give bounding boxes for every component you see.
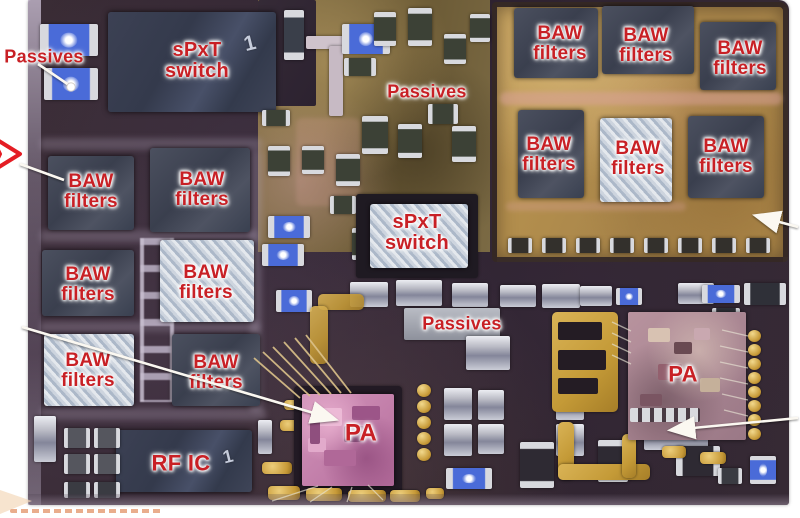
passive-chip: [94, 454, 120, 474]
die-detail: [694, 328, 710, 340]
passive-chip: [478, 390, 504, 420]
trace-cutout: [558, 378, 598, 394]
gold-pad: [748, 414, 761, 426]
passive-chip: [284, 10, 304, 60]
label-baw-filters-11: BAW filters: [611, 139, 665, 179]
label-baw-filters-9: BAW filters: [713, 39, 767, 79]
passive-chip: [94, 428, 120, 448]
label-spxt-switch-top-left: sPxT switch: [165, 40, 229, 82]
label-baw-filters-12: BAW filters: [699, 137, 753, 177]
gold-pad: [748, 428, 761, 440]
blue-capacitor: [750, 456, 776, 484]
label-spxt-switch-center: sPxT switch: [385, 212, 449, 254]
passive-chip: [444, 34, 466, 64]
passive-chip: [712, 238, 736, 253]
gold-pad: [417, 416, 431, 429]
passive-chip: [396, 280, 442, 306]
passive-chip: [330, 196, 356, 214]
passive-chip: [470, 14, 490, 42]
label-baw-filters-4: BAW filters: [179, 263, 233, 303]
passive-chip: [478, 424, 504, 454]
passive-chip: [576, 238, 600, 253]
passive-chip: [746, 238, 770, 253]
gold-pad: [748, 330, 761, 342]
gold-trace: [310, 306, 328, 364]
bond-pad-comb: [630, 408, 700, 422]
trace-cutout: [558, 322, 602, 340]
gold-pad: [748, 372, 761, 384]
passive-chip: [452, 126, 476, 162]
passive-chip: [34, 416, 56, 462]
gold-pad: [700, 452, 726, 464]
die-detail: [640, 394, 662, 406]
label-baw-filters-2: BAW filters: [175, 170, 229, 210]
photo-bottom-edge: [28, 494, 789, 505]
passive-chip: [580, 286, 612, 306]
blue-capacitor: [276, 290, 312, 312]
die-detail: [648, 328, 670, 342]
label-baw-filters-8: BAW filters: [619, 26, 673, 66]
gold-pad: [262, 462, 292, 474]
page-edge-artifact: [10, 509, 164, 513]
blue-capacitor: [616, 288, 642, 305]
label-baw-filters-1: BAW filters: [64, 172, 118, 212]
label-baw-filters-7: BAW filters: [533, 24, 587, 64]
blue-capacitor: [44, 68, 98, 100]
passive-chip: [336, 154, 360, 186]
passive-chip: [268, 146, 290, 176]
passive-chip: [520, 442, 554, 488]
trace-cutout: [558, 350, 606, 370]
gold-pad: [748, 400, 761, 412]
passive-chip: [344, 58, 376, 76]
passive-chip: [362, 116, 388, 154]
label-rf-ic: RF IC: [152, 451, 211, 474]
label-passives-top-middle: Passives: [387, 82, 466, 101]
passive-chip: [542, 284, 580, 308]
gold-trace: [622, 434, 636, 478]
die-detail: [352, 406, 380, 420]
passive-chip: [258, 420, 272, 454]
gold-pad: [748, 386, 761, 398]
die-detail: [310, 414, 320, 444]
gold-pad: [417, 384, 431, 397]
label-baw-filters-6: BAW filters: [189, 353, 243, 393]
label-baw-filters-10: BAW filters: [522, 135, 576, 175]
module-trace: [506, 202, 686, 211]
passive-chip: [444, 424, 472, 456]
passive-chip: [262, 110, 290, 126]
passive-chip: [508, 238, 532, 253]
blue-capacitor: [446, 468, 492, 489]
blue-capacitor: [268, 216, 310, 238]
passive-chip: [398, 124, 422, 158]
passive-chip: [64, 428, 90, 448]
passive-chip: [428, 104, 458, 124]
metal-trace: [329, 46, 343, 116]
die-detail: [674, 342, 692, 354]
substrate-trace: [40, 408, 266, 420]
passive-chip: [302, 146, 324, 174]
passive-chip: [408, 8, 432, 46]
blue-capacitor: [262, 244, 304, 266]
passive-chip: [452, 283, 488, 307]
passive-chip: [678, 238, 702, 253]
passive-chip: [644, 238, 668, 253]
die-detail: [700, 378, 720, 392]
label-pa-right: PA: [668, 362, 698, 385]
gold-pad: [417, 432, 431, 445]
passive-chip: [744, 283, 786, 305]
figure-canvas: Passives sPxT switch 1 Passives BAW filt…: [0, 0, 800, 518]
blue-capacitor: [702, 285, 740, 303]
label-baw-filters-5: BAW filters: [61, 351, 115, 391]
red-chevron-arrow-icon: [0, 136, 20, 172]
gold-trace: [558, 464, 650, 480]
passive-chip: [466, 336, 510, 370]
gold-pad: [748, 344, 761, 356]
label-baw-filters-3: BAW filters: [61, 265, 115, 305]
passive-chip: [610, 238, 634, 253]
gold-pad: [417, 448, 431, 461]
passive-chip: [64, 454, 90, 474]
passive-chip: [500, 285, 536, 307]
label-passives-top-left: Passives: [4, 47, 83, 66]
label-passives-center: Passives: [422, 314, 501, 333]
die-detail: [324, 450, 356, 466]
passive-chip: [374, 12, 396, 46]
gold-pad: [417, 400, 431, 413]
label-pa-center: PA: [345, 420, 377, 445]
passive-chip: [718, 468, 742, 484]
module-trace: [500, 92, 782, 105]
gold-pad: [662, 446, 686, 458]
passive-chip: [444, 388, 472, 420]
passive-chip: [542, 238, 566, 253]
gold-pad: [748, 358, 761, 370]
